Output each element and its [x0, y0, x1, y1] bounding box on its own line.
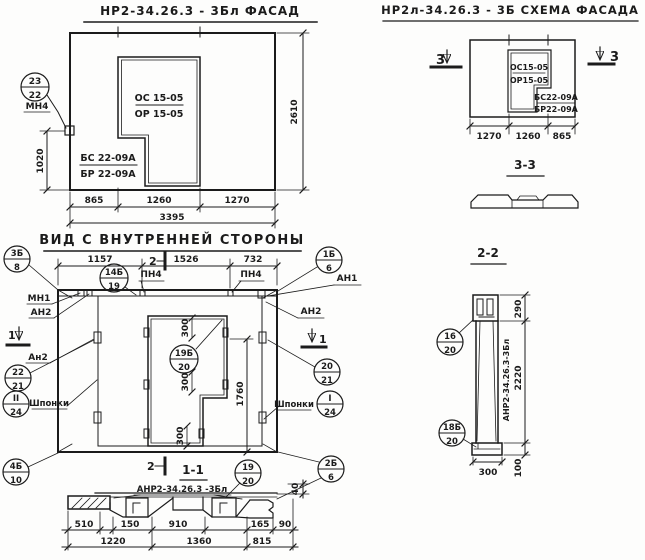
shponki-left-label: Шпонки [29, 399, 69, 409]
callout-bottom: 22 [29, 91, 42, 101]
dim-150: 150 [121, 520, 140, 530]
section22-body-taper [477, 321, 496, 441]
facade-opening-mark-1: ОС 15-05 [135, 93, 184, 104]
section22-loop-slots [477, 299, 494, 317]
callout-bottom: 24 [324, 408, 336, 418]
profile-contour-left [110, 503, 148, 517]
callout-top: 1Б [323, 250, 335, 260]
dim-300: 300 [479, 468, 498, 478]
callout-leader [459, 320, 473, 333]
dim-3395: 3395 [159, 213, 184, 223]
facade-panel-mark-2: БР 22-09А [80, 169, 136, 180]
schema-title: НР2л-34.26.3 - 3Б СХЕМА ФАСАДА [381, 3, 639, 17]
section2-mark-top: 2 [149, 255, 157, 268]
section-1-1: 2 1-1 АНР2-34.26.3 -3Бл 19 20 40 510 150… [62, 458, 309, 550]
facade-view: НР2-34.26.3 - 3Бл ФАСАД ОС 15-05 ОР 15-0… [21, 4, 317, 228]
callout-bottom: 10 [10, 476, 22, 486]
shponki-left-leader [67, 380, 97, 406]
callout-bottom: 6 [328, 473, 334, 483]
callout-top: 3Б [11, 249, 23, 259]
mn4-label: МН4 [26, 102, 49, 112]
profile-right-block [236, 500, 273, 518]
dim-815: 815 [253, 537, 272, 547]
callout-leader [28, 452, 60, 467]
schema-panel-mark-1: БС22-09А [534, 93, 579, 102]
facade-window-outer [118, 57, 200, 186]
callout-bottom: 20 [444, 346, 456, 356]
dim-40: 40 [291, 483, 301, 496]
dim-1526: 1526 [173, 255, 198, 265]
callout-leader [196, 320, 222, 349]
profile-middle [148, 497, 212, 517]
dim-1760: 1760 [236, 381, 246, 406]
callout-leader [226, 483, 240, 497]
inner-view: ВИД С ВНУТРЕННЕЙ СТОРОНЫ 1157 1526 732 2… [3, 232, 361, 499]
callout-top: 4Б [10, 462, 22, 472]
callout-bottom: 19 [108, 282, 120, 292]
mn4-leader [47, 95, 66, 128]
callout-top: 18Б [443, 423, 461, 433]
dim-300-a: 300 [181, 319, 191, 338]
an2-right-leader [266, 302, 298, 318]
dim-ext-lines [473, 457, 502, 465]
callout-bottom: 24 [10, 408, 22, 418]
callout-leader [268, 340, 315, 367]
callout-leader [278, 267, 317, 291]
inner-corner-chamfers [58, 290, 277, 452]
callout-bottom: 8 [14, 263, 20, 273]
inner-title: ВИД С ВНУТРЕННЕЙ СТОРОНЫ [39, 232, 304, 248]
section-2-2: 2-2 290 2220 100 300 АНР2-34.26.3-3Бл 16… [437, 246, 530, 478]
callout-top: 14Б [105, 268, 123, 278]
callout-leader [29, 265, 57, 289]
dim-1220: 1220 [100, 537, 125, 547]
section1-mark-right: 1 [319, 333, 327, 346]
dim-1260: 1260 [146, 196, 171, 206]
inner-top-anchor-marks [78, 290, 265, 298]
inner-panel-outline [58, 290, 277, 452]
dim-865: 865 [553, 132, 572, 142]
profile-rib-2 [212, 498, 236, 517]
dim-910: 910 [169, 520, 188, 530]
an1-label: АН1 [337, 274, 358, 284]
dim-732: 732 [244, 255, 263, 265]
callout-bottom: 20 [446, 437, 458, 447]
dim-510: 510 [75, 520, 94, 530]
section22-foot-detail [474, 443, 500, 449]
dim-90: 90 [279, 520, 292, 530]
callout-top: 19Б [175, 349, 193, 359]
dim-1020: 1020 [36, 148, 46, 173]
section33-profile-detail [512, 196, 543, 208]
callout-top: 20 [321, 362, 333, 372]
dim-1360: 1360 [186, 537, 211, 547]
dim-1157: 1157 [87, 255, 112, 265]
dim-865: 865 [85, 196, 104, 206]
section33-profile [471, 195, 578, 208]
dim-2220: 2220 [514, 365, 524, 390]
callout-bottom: 21 [321, 376, 333, 386]
schema-panel-mark-2: БР22-09А [534, 105, 579, 114]
profile-hatch [72, 498, 106, 508]
callout-top: 22 [12, 368, 24, 378]
facade-title: НР2-34.26.3 - 3Бл ФАСАД [100, 4, 300, 18]
an2-right-label: АН2 [301, 307, 322, 317]
dim-100: 100 [514, 459, 524, 478]
callout-top: II [13, 394, 19, 404]
dim-300-c: 300 [176, 427, 186, 446]
shponki-right-label: Шпонки [274, 400, 314, 410]
drawing-sheet: НР2-34.26.3 - 3Бл ФАСАД ОС 15-05 ОР 15-0… [0, 0, 645, 560]
section1-mark-left: 1 [8, 329, 16, 342]
callout-bottom: 20 [242, 477, 254, 487]
dim-300-b: 300 [181, 373, 191, 392]
dim-1270: 1270 [476, 132, 501, 142]
dim-165: 165 [251, 520, 270, 530]
section33-title: 3-3 [514, 158, 536, 172]
dim-290: 290 [514, 300, 524, 319]
schema-opening-mark-2: ОР15-05 [510, 76, 549, 85]
pn4-label-2: ПН4 [240, 270, 261, 280]
facade-panel-mark-1: БС 22-09А [80, 153, 136, 164]
callout-bottom: 6 [326, 264, 332, 274]
inner-panel-inner-lines [58, 296, 277, 446]
callout-bottom: 20 [178, 363, 190, 373]
callout-top: 16 [444, 332, 456, 342]
callout-top: I [328, 394, 331, 404]
blueprint-svg: НР2-34.26.3 - 3Бл ФАСАД ОС 15-05 ОР 15-0… [0, 0, 645, 560]
dim-1270: 1270 [224, 196, 249, 206]
anchor-glyph-2 [220, 503, 227, 513]
mn1-label: МН1 [28, 294, 51, 304]
callout-top: 23 [29, 77, 42, 87]
an2-lower-label: Ан2 [28, 353, 47, 363]
callout-top: 19 [242, 463, 254, 473]
schema-view: НР2л-34.26.3 - 3Б СХЕМА ФАСАДА ОС15-05 О… [381, 3, 639, 142]
callout-top: 2Б [325, 459, 337, 469]
section-3-3: 3-3 [471, 158, 578, 208]
pn4-label-1: ПН4 [140, 270, 161, 280]
section2-mark-bottom: 2 [147, 460, 155, 473]
section22-title: 2-2 [477, 246, 499, 260]
dim-2610: 2610 [290, 99, 300, 124]
callout-bottom: 21 [12, 382, 24, 392]
facade-opening-mark-2: ОР 15-05 [135, 109, 184, 120]
schema-opening-mark-1: ОС15-05 [510, 63, 549, 72]
section22-side-label: АНР2-34.26.3-3Бл [502, 339, 511, 422]
profile-rib-1 [126, 498, 148, 517]
section11-title: 1-1 [182, 463, 204, 477]
an2-left-label: АН2 [31, 308, 52, 318]
anchor-glyph-1 [133, 503, 140, 513]
dim-1260: 1260 [515, 132, 540, 142]
